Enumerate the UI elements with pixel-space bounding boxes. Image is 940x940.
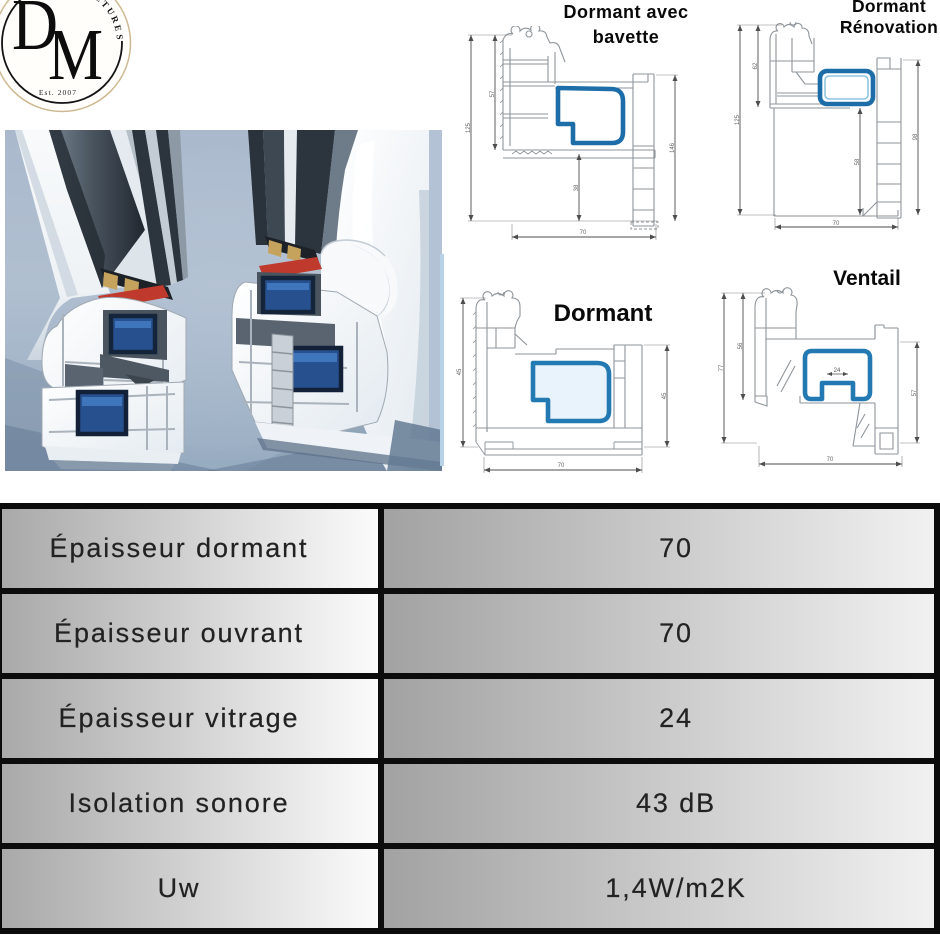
svg-text:45: 45: [662, 392, 668, 399]
svg-text:77: 77: [719, 364, 725, 371]
svg-text:38: 38: [574, 184, 580, 191]
svg-text:57: 57: [490, 90, 496, 97]
svg-text:70: 70: [558, 463, 565, 469]
svg-text:S: S: [114, 34, 124, 40]
svg-text:70: 70: [833, 221, 840, 227]
svg-text:56: 56: [738, 342, 744, 349]
svg-text:62: 62: [753, 62, 759, 69]
svg-text:24: 24: [834, 368, 841, 374]
svg-text:125: 125: [735, 114, 741, 125]
svg-text:146: 146: [670, 142, 676, 153]
svg-text:98: 98: [913, 133, 919, 140]
svg-text:Est. 2007: Est. 2007: [39, 88, 77, 97]
svg-text:45: 45: [457, 368, 463, 375]
svg-text:125: 125: [466, 122, 472, 133]
svg-text:M: M: [48, 14, 103, 95]
svg-text:70: 70: [580, 230, 587, 236]
svg-text:70: 70: [827, 457, 834, 463]
svg-text:58: 58: [855, 158, 861, 165]
svg-text:57: 57: [912, 389, 918, 396]
